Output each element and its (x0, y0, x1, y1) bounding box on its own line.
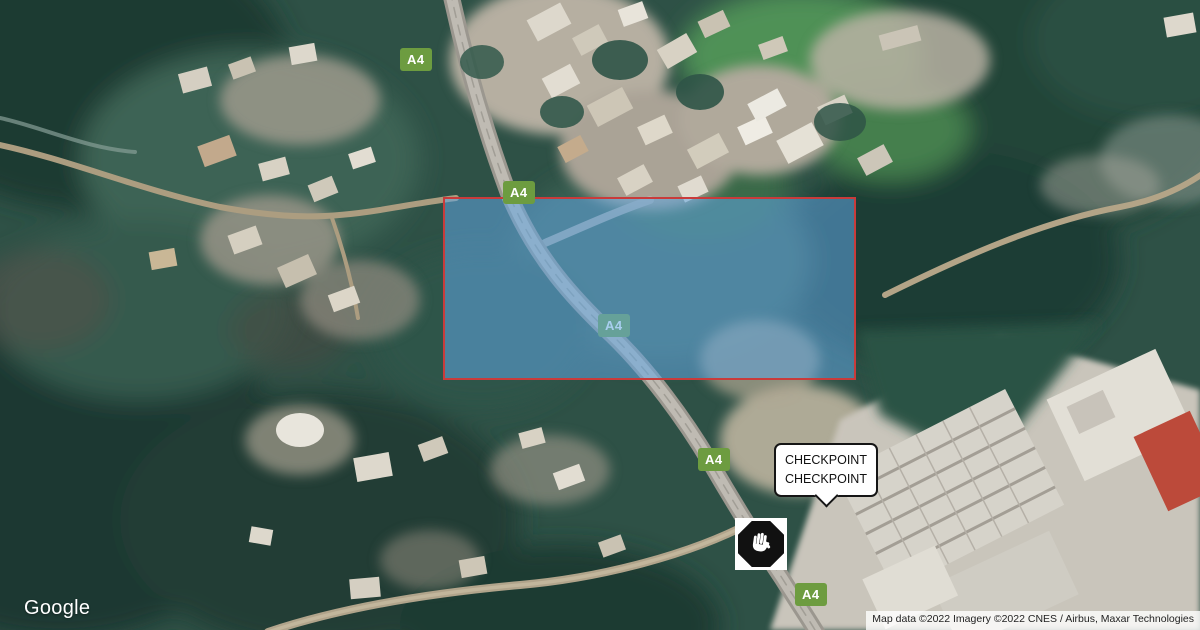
road-badge-a4: A4 (400, 48, 432, 71)
checkpoint-callout-line2: CHECKPOINT (785, 470, 867, 489)
stop-octagon-icon (738, 521, 784, 567)
google-logo[interactable]: Google (24, 598, 90, 618)
stop-hand-icon (746, 529, 776, 559)
checkpoint-callout[interactable]: CHECKPOINT CHECKPOINT (774, 443, 878, 497)
road-badge-a4: A4 (698, 448, 730, 471)
road-badge-a4: A4 (503, 181, 535, 204)
checkpoint-callout-line1: CHECKPOINT (785, 451, 867, 470)
road-badge-a4: A4 (795, 583, 827, 606)
map-canvas[interactable]: A4 A4 A4 A4 A4 CHECKPOINT CHECKPOINT Go (0, 0, 1200, 630)
map-attribution: Map data ©2022 Imagery ©2022 CNES / Airb… (866, 611, 1200, 630)
highlighted-region[interactable] (443, 197, 856, 380)
checkpoint-marker[interactable] (735, 518, 787, 570)
